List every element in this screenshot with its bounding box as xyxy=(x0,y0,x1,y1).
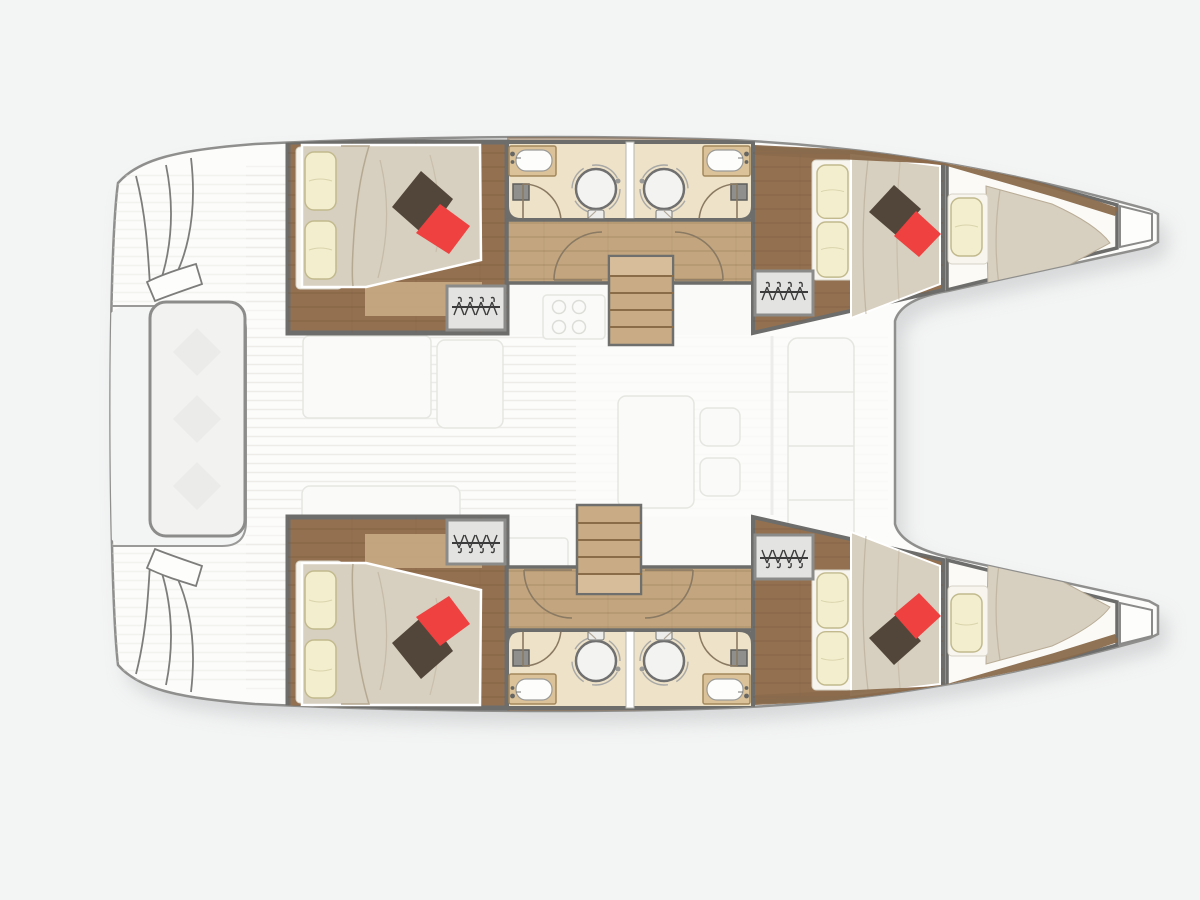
cockpit-bench xyxy=(150,302,245,536)
stern-platform xyxy=(104,302,246,546)
stairs-top-hull xyxy=(609,256,673,345)
sofa xyxy=(788,338,854,556)
cockpit-table xyxy=(303,336,431,418)
galley-stove xyxy=(543,295,605,339)
saloon-table xyxy=(618,396,694,508)
catamaran-floor-plan xyxy=(0,0,1200,900)
cockpit-bench-seat xyxy=(437,340,503,428)
chair xyxy=(700,408,740,446)
chair xyxy=(700,458,740,496)
stairs-bottom-hull xyxy=(577,505,641,594)
floor-plan-stage xyxy=(0,0,1200,900)
